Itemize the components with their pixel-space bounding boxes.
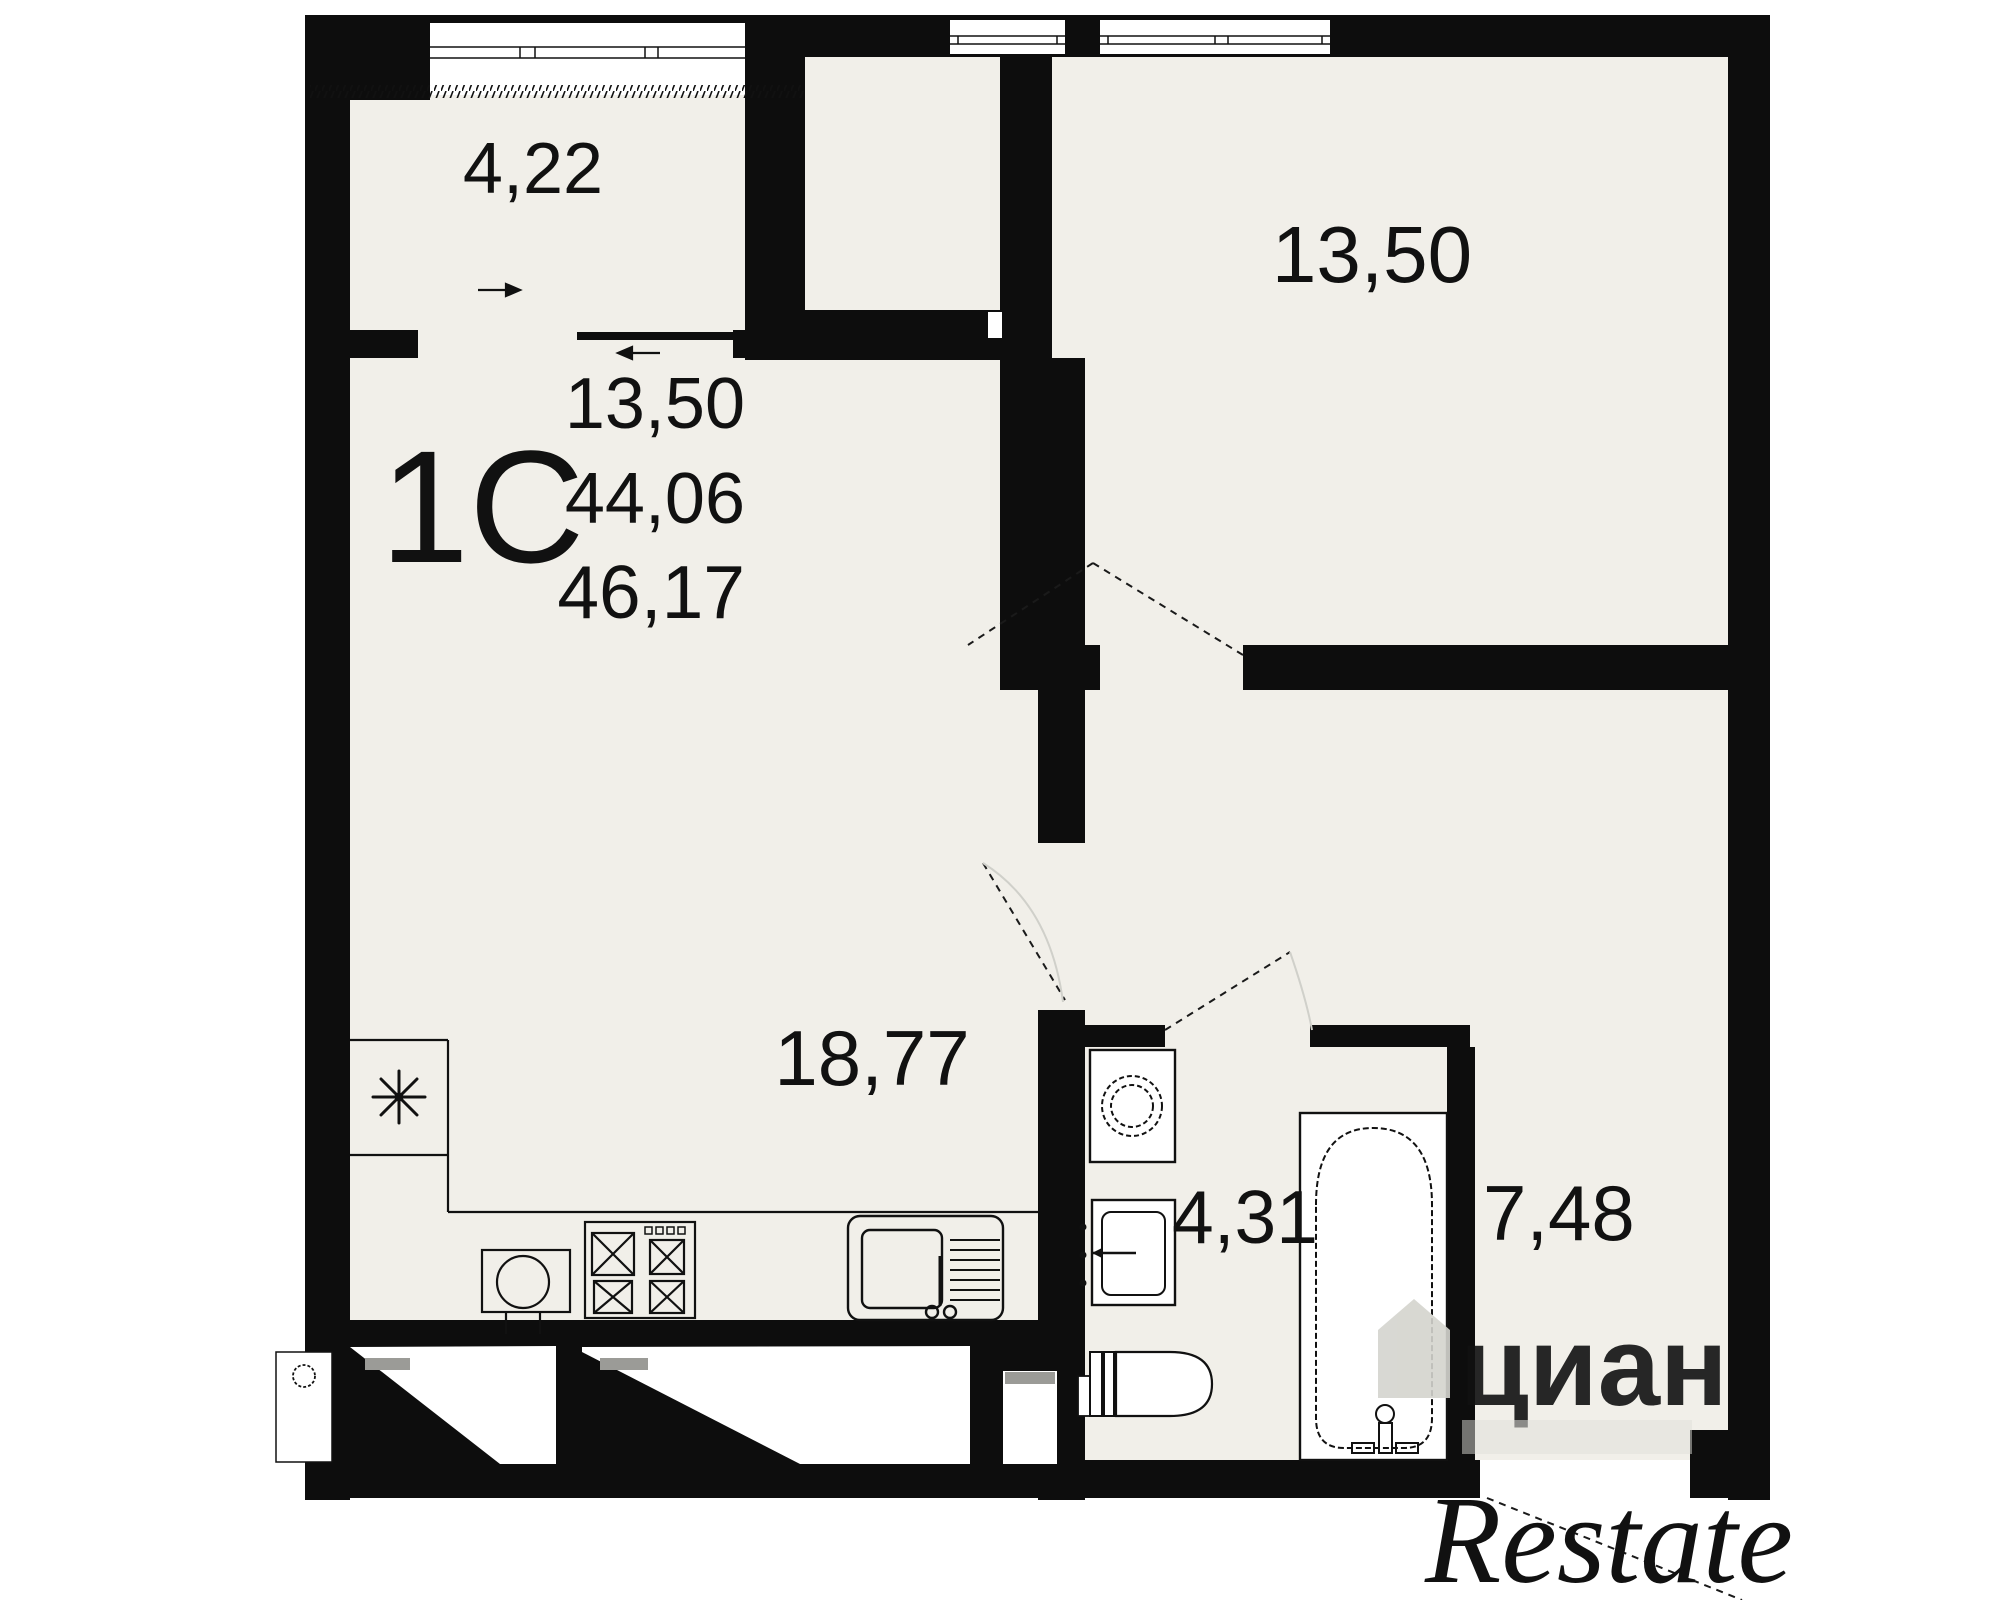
wall-balcony-partition-left [350, 330, 418, 358]
cian-subtext-bar [1462, 1420, 1692, 1454]
cian-logo-text: циан [1460, 1304, 1728, 1429]
vent-bar-3 [1005, 1372, 1055, 1384]
label-hallway-area: 7,48 [1483, 1169, 1635, 1257]
floor-plan-canvas: 4,22 13,50 18,77 4,31 7,48 1С 13,50 44,0… [0, 0, 2000, 1600]
wall-bathroom-top-right [1310, 1025, 1470, 1047]
unit-living-area: 13,50 [565, 364, 745, 444]
bedroom-window [1100, 20, 1330, 54]
wall-bedroom-bottom-right [1243, 645, 1728, 690]
wall-balcony-partition-right [733, 330, 805, 358]
column-circle-icon [293, 1365, 315, 1387]
label-balcony-area: 4,22 [463, 129, 603, 209]
facade-bay-3 [1003, 1371, 1057, 1464]
label-living-area: 18,77 [774, 1014, 969, 1102]
wall-shaft-bottom [805, 310, 1003, 360]
unit-type-label: 1С [380, 417, 585, 596]
vent-bar-2 [600, 1358, 648, 1370]
label-bedroom-area: 13,50 [1272, 210, 1472, 299]
balcony-window [430, 23, 745, 95]
vent-bar-1 [365, 1358, 410, 1370]
washbasin-icon [1080, 1200, 1176, 1305]
wall-left [305, 15, 350, 1500]
bathtub-icon [1300, 1113, 1447, 1460]
stove-icon [585, 1222, 695, 1318]
wall-bottom-bath [1072, 1460, 1480, 1498]
shaft-window [950, 20, 1065, 54]
restate-watermark-text: Restate [1424, 1472, 1793, 1600]
door-jamb-shaft [988, 312, 1002, 338]
asterisk-icon [373, 1071, 425, 1123]
wall-right [1728, 15, 1770, 1500]
floor-plan: 4,22 13,50 18,77 4,31 7,48 1С 13,50 44,0… [0, 0, 2000, 1600]
wall-living-right-upper [1038, 358, 1085, 843]
unit-area: 44,06 [565, 459, 745, 539]
toilet-icon [1078, 1352, 1212, 1416]
wall-balcony-right [745, 15, 805, 360]
sink-drainboard-icon [848, 1216, 1003, 1320]
balcony-sill-line [577, 332, 733, 340]
wall-bathroom-top-left [1072, 1025, 1165, 1047]
unit-total-area: 46,17 [557, 550, 745, 634]
washing-machine-icon [1090, 1050, 1175, 1162]
balcony-glazing-hatch [310, 85, 805, 98]
label-bathroom-area: 4,31 [1172, 1175, 1318, 1259]
